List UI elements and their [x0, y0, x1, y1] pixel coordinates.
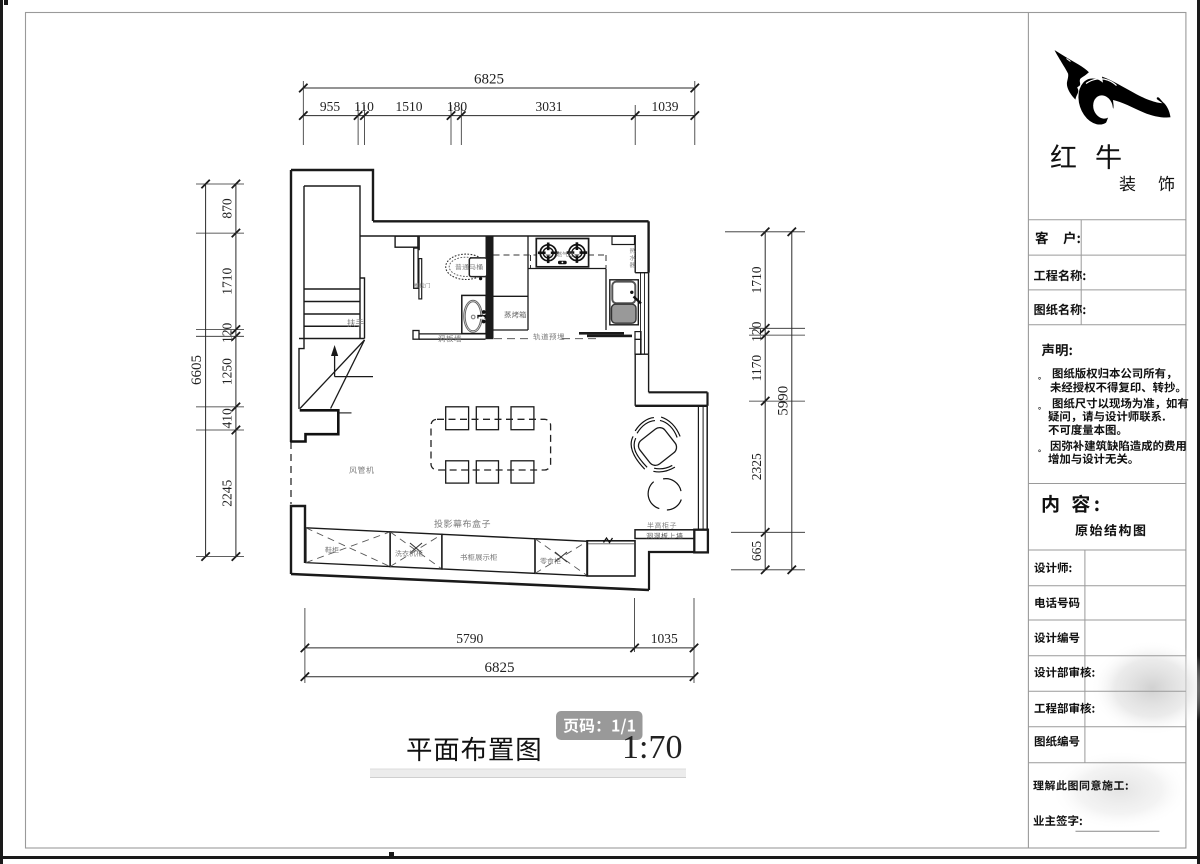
svg-text:1510: 1510 — [396, 99, 423, 114]
svg-text:1710: 1710 — [220, 268, 235, 295]
svg-text:5990: 5990 — [775, 386, 791, 416]
svg-text:6605: 6605 — [189, 355, 205, 385]
svg-text:5790: 5790 — [456, 631, 483, 646]
svg-text:120: 120 — [749, 321, 764, 342]
svg-text:120: 120 — [220, 323, 235, 344]
svg-text:1035: 1035 — [651, 631, 678, 646]
svg-text:1710: 1710 — [749, 266, 764, 293]
svg-text:955: 955 — [320, 99, 341, 114]
svg-text:180: 180 — [447, 99, 468, 114]
svg-text:3031: 3031 — [536, 99, 563, 114]
svg-text:6825: 6825 — [485, 660, 515, 676]
svg-text:1039: 1039 — [652, 99, 679, 114]
svg-text:1170: 1170 — [749, 355, 764, 382]
svg-text:110: 110 — [354, 99, 374, 114]
svg-text:2325: 2325 — [749, 453, 764, 480]
svg-text:6825: 6825 — [474, 72, 504, 88]
svg-text:870: 870 — [220, 198, 235, 219]
svg-text:1:70: 1:70 — [622, 729, 682, 766]
svg-text:665: 665 — [749, 541, 764, 562]
svg-text:410: 410 — [220, 408, 235, 429]
svg-text:1250: 1250 — [220, 358, 235, 385]
svg-text:2245: 2245 — [220, 480, 235, 507]
